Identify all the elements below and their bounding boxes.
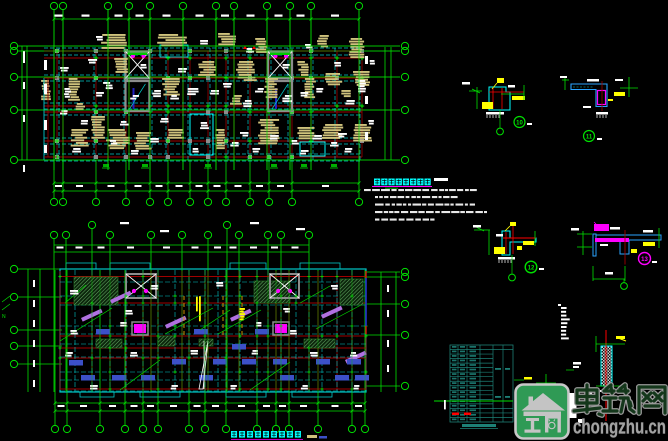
svg-text:N: N [2,314,6,320]
svg-text:10: 10 [516,121,523,127]
svg-text:11: 11 [586,135,593,141]
svg-text:chongzhu.cn: chongzhu.cn [573,417,666,439]
svg-text:13: 13 [641,257,648,263]
svg-text:12: 12 [528,266,535,272]
